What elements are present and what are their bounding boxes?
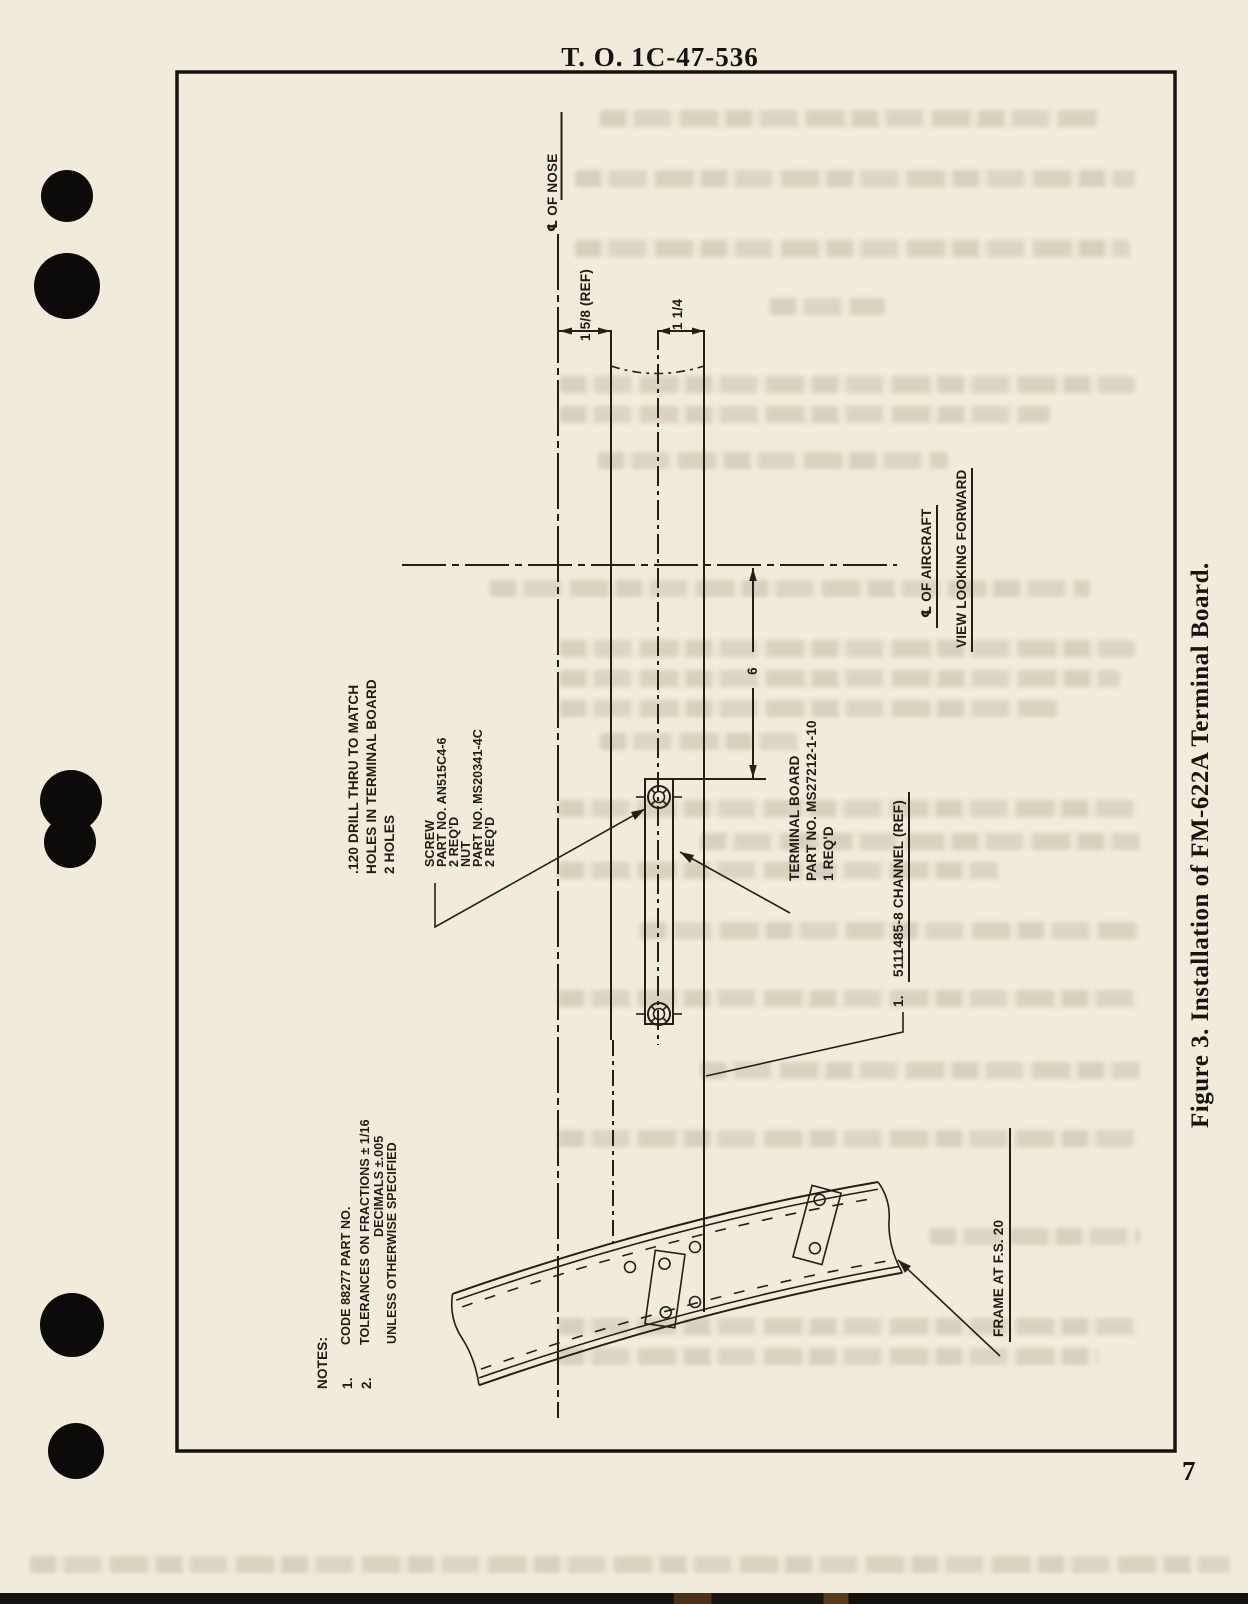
scan-bottom-edge <box>0 1593 1248 1604</box>
terminal-board-leader-arrow <box>680 852 694 863</box>
nose-centerline-label: ℄ OF NOSE <box>545 154 560 232</box>
dim-ref-label: 1 5/8 (REF) <box>578 269 593 341</box>
frame-band <box>445 1171 906 1388</box>
terminal-board-note-line-1: TERMINAL BOARD <box>787 755 802 881</box>
channel-note-leader <box>706 1012 903 1076</box>
screw-note-leader-arrow <box>631 809 645 820</box>
aircraft-centerline-label: ℄ OF AIRCRAFT <box>919 508 934 618</box>
note-2-line-1: TOLERANCES ON FRACTIONS ± 1/16 <box>358 1119 372 1345</box>
screw-note-line-6: 2 REQ'D <box>483 817 497 867</box>
figure-3-drawing: ℄ OF NOSE ℄ OF AIRCRAFT VIEW LOOKING FOR… <box>0 0 1248 1604</box>
terminal-board-note-line-2: PART NO. MS27212-1-10 <box>804 720 819 881</box>
figure-border <box>177 72 1175 1451</box>
channel-note-text: 5111485-8 CHANNEL (REF) <box>891 800 906 977</box>
drill-note-line-1: .120 DRILL THRU TO MATCH <box>346 685 361 874</box>
dim-height-arrow-bottom <box>749 765 757 778</box>
note-2-line-3: UNLESS OTHERWISE SPECIFIED <box>385 1142 399 1344</box>
frame-note-label: FRAME AT F.S. 20 <box>991 1220 1006 1337</box>
dim-height-label: 6 <box>745 667 760 675</box>
frame-hole-2 <box>690 1242 701 1253</box>
drill-note-line-2: HOLES IN TERMINAL BOARD <box>364 679 379 874</box>
note-2-number: 2. <box>359 1377 374 1389</box>
frame-note-leader <box>898 1260 1000 1356</box>
terminal-board-leader <box>680 852 790 913</box>
note-1-number: 1. <box>340 1377 355 1389</box>
dim-board-arrow-right <box>692 328 704 335</box>
figure-caption: Figure 3. Installation of FM-622A Termin… <box>1187 562 1214 1128</box>
dim-board-label: 1 1/4 <box>670 299 685 330</box>
dim-ref-arrow-left <box>559 328 572 335</box>
screw-note-leader <box>435 809 645 927</box>
scanned-document-page: T. O. 1C-47-536 ℄ OF NOSE ℄ OF AIRCRAFT … <box>0 0 1248 1604</box>
frame-hole-3 <box>690 1297 701 1308</box>
dim-height-arrow-top <box>749 568 757 581</box>
note-2-line-2: DECIMALS ±.005 <box>372 1136 386 1237</box>
view-looking-forward-label: VIEW LOOKING FORWARD <box>954 469 969 648</box>
page-number: 7 <box>1182 1456 1196 1486</box>
note-1-text: CODE 88277 PART NO. <box>339 1206 353 1345</box>
punch-holes <box>34 170 104 1479</box>
channel-note-number: 1. <box>891 995 906 1007</box>
notes-heading: NOTES: <box>315 1337 330 1389</box>
dim-board-arrow-left <box>658 328 670 335</box>
drill-note-line-3: 2 HOLES <box>382 815 397 874</box>
dim-ref-arrow-right <box>598 328 611 335</box>
frame-hole-1 <box>625 1262 636 1273</box>
terminal-board-note-line-3: 1 REQ'D <box>821 826 836 881</box>
